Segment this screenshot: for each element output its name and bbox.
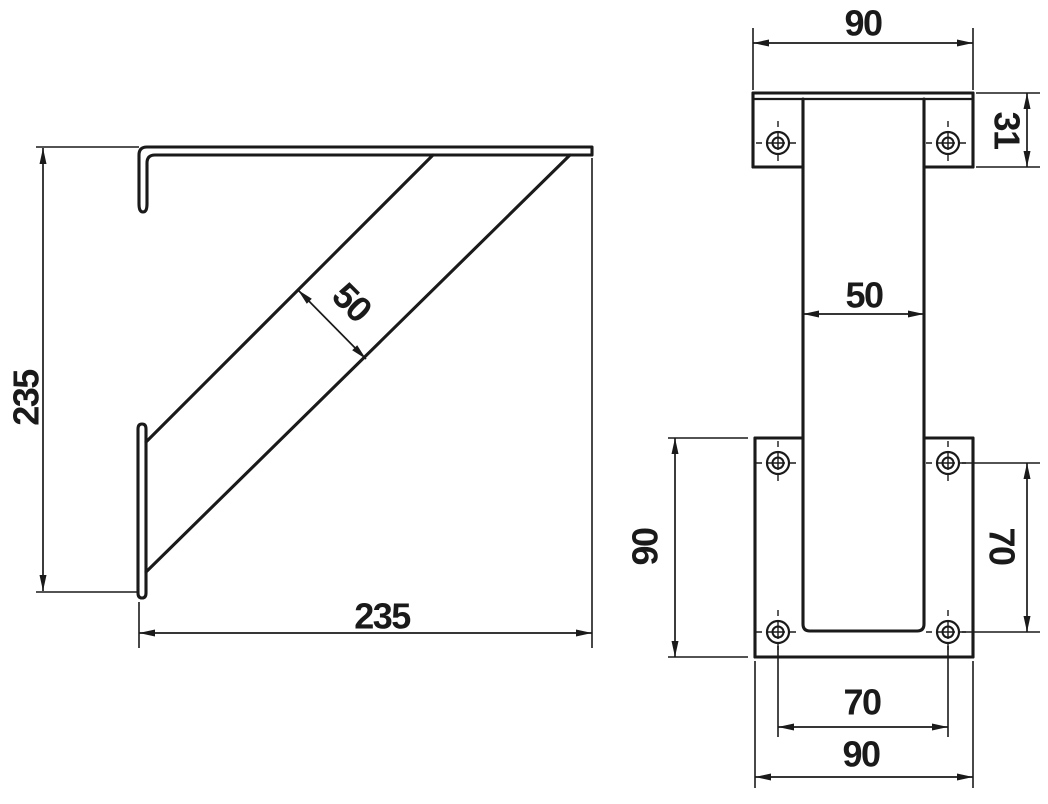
top-plate xyxy=(753,93,973,167)
technical-drawing: 235 50 235 xyxy=(0,0,1048,804)
hole-bottom-plate-upper-left xyxy=(756,441,800,485)
dim-top-plate-width: 90 xyxy=(753,3,973,91)
dim-top-height-label: 31 xyxy=(987,111,1028,150)
hole-top-plate-left xyxy=(756,121,800,165)
side-view: 235 50 235 xyxy=(6,147,593,648)
dim-depth-arrow-left xyxy=(139,630,155,637)
hole-top-plate-right xyxy=(926,121,970,165)
dim-hole-pitch-horizontal: 70 xyxy=(778,646,948,737)
dim-height-arrow-down xyxy=(40,575,47,591)
dim-depth-label: 235 xyxy=(354,596,411,637)
front-view: 90 31 50 90 xyxy=(625,3,1041,789)
dim-plate-height-label: 90 xyxy=(625,528,666,566)
dim-upright-label: 50 xyxy=(845,275,883,316)
dim-strut-width: 50 xyxy=(298,274,380,359)
dim-hole-h-label: 70 xyxy=(843,682,881,723)
dim-depth: 235 xyxy=(139,158,592,648)
dim-upright-width: 50 xyxy=(803,275,924,318)
screw-holes xyxy=(756,121,970,654)
strut-lower-edge xyxy=(146,155,570,572)
dim-plate-height: 90 xyxy=(625,438,749,657)
dim-height: 235 xyxy=(6,147,140,592)
dim-top-plate-height: 31 xyxy=(976,93,1040,167)
dim-height-arrow-up xyxy=(40,148,47,164)
dim-depth-arrow-right xyxy=(576,630,592,637)
strut-upper-edge xyxy=(146,155,433,442)
dim-bottom-plate-width: 90 xyxy=(755,661,973,788)
dim-hole-v-label: 70 xyxy=(982,527,1023,565)
upright-channel xyxy=(803,99,924,631)
dim-bottom-width-label: 90 xyxy=(842,734,880,775)
dim-top-width-label: 90 xyxy=(844,3,882,44)
dim-height-label: 235 xyxy=(6,369,47,426)
dim-strut-label: 50 xyxy=(324,274,380,330)
